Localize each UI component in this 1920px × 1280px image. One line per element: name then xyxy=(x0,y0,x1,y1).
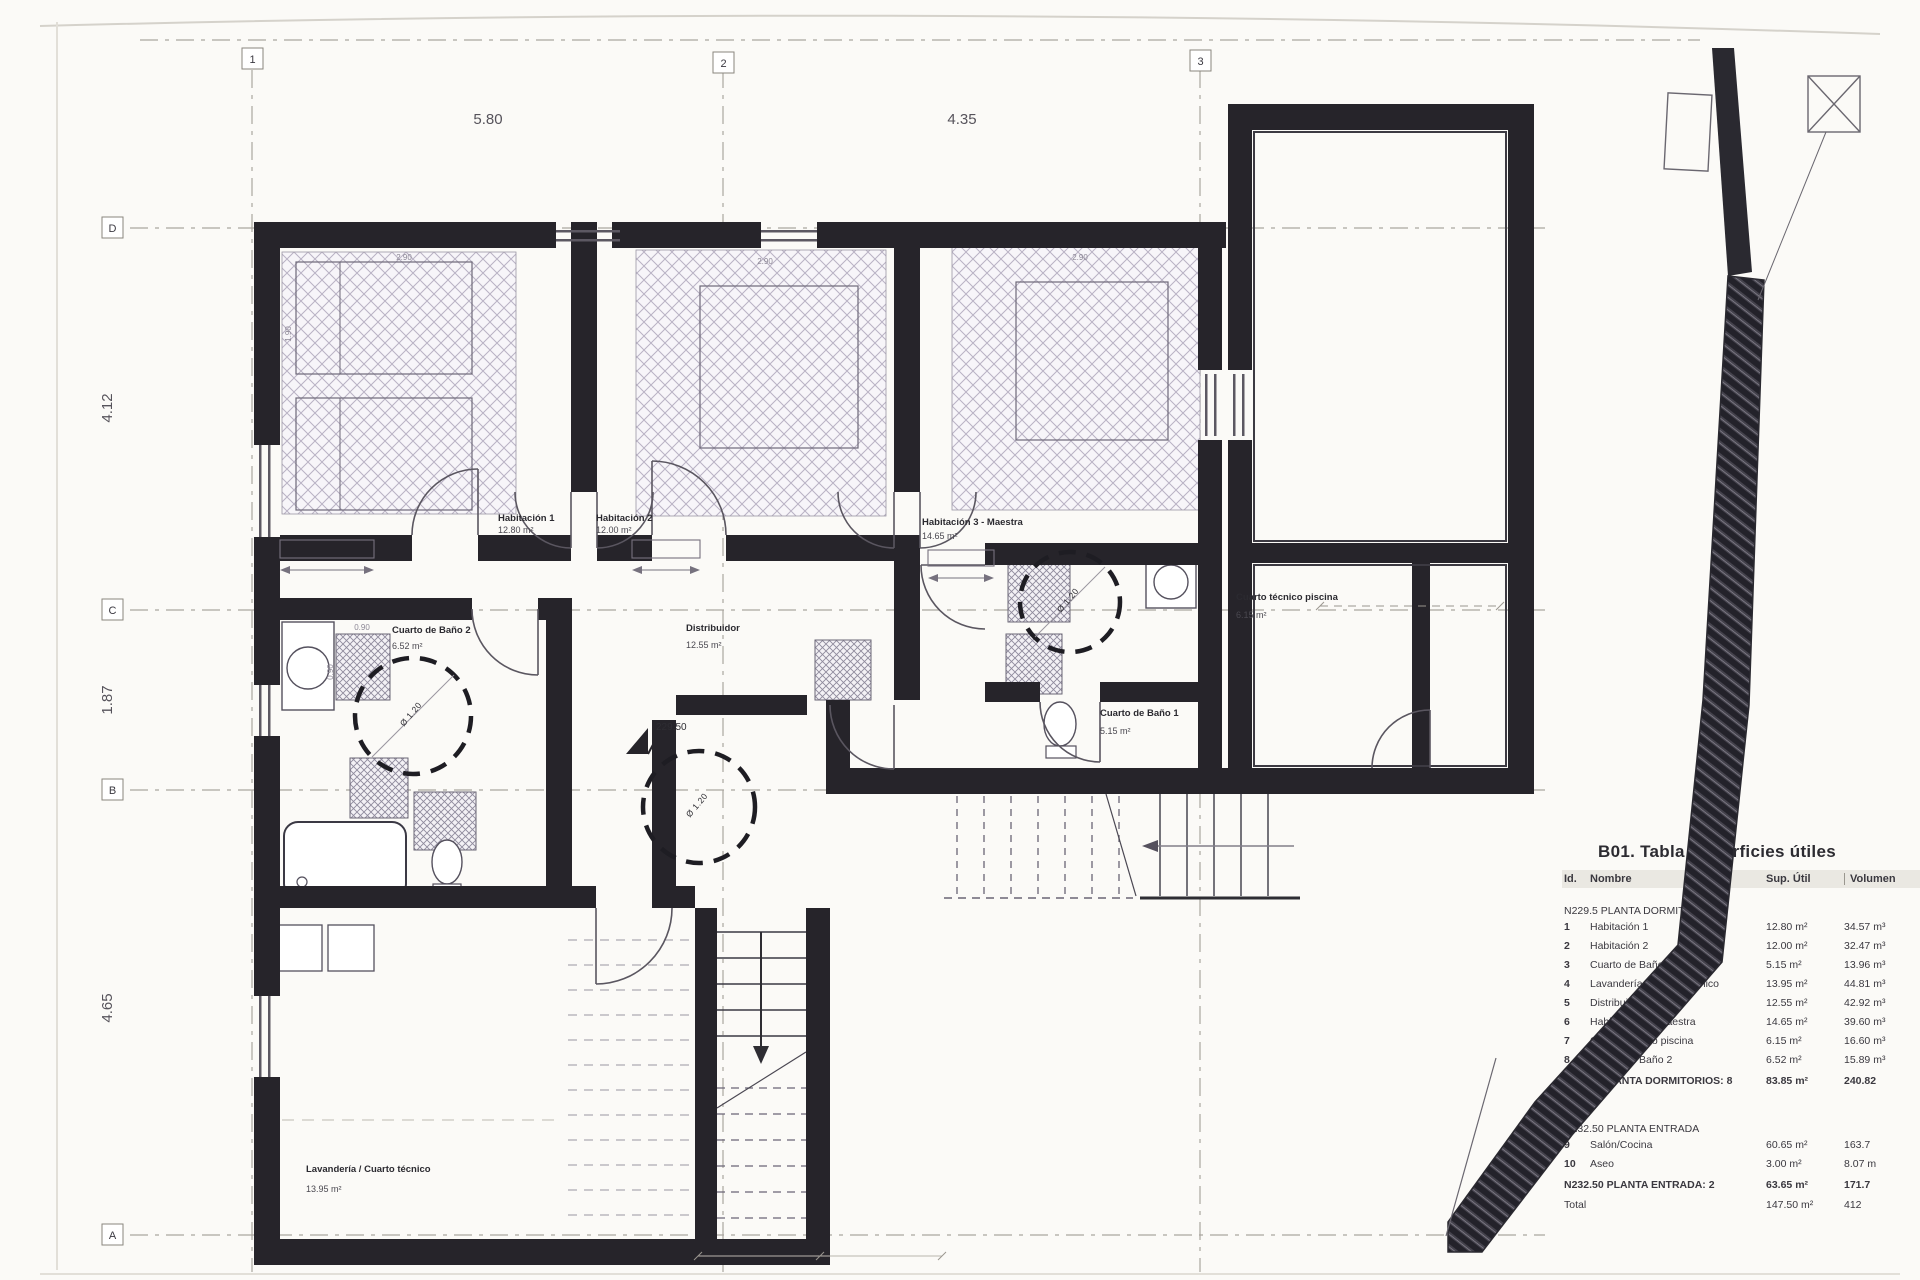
total-row: Total147.50 m²412 xyxy=(1562,1196,1920,1214)
table-row: 10Aseo3.00 m²8.07 m xyxy=(1562,1155,1920,1174)
fixture-dim: 0.90 xyxy=(354,623,370,632)
room-label-bano-1: Cuarto de Baño 1 xyxy=(1100,708,1179,719)
col-volumen: Volumen xyxy=(1844,873,1914,885)
grid-row-d: D xyxy=(109,223,117,235)
toilet-icon xyxy=(1044,702,1076,746)
bed-dim: 2.90 xyxy=(396,253,412,262)
dim-top-2: 4.35 xyxy=(947,111,976,128)
room-label-habitacion-2: Habitación 2 xyxy=(596,513,653,524)
bed-dim: 1.90 xyxy=(284,326,293,342)
dim-top-1: 5.80 xyxy=(473,111,502,128)
table-header: Id. Nombre Sup. Útil Volumen xyxy=(1562,870,1920,888)
turn-circle-label: Ø 1.20 xyxy=(684,791,710,819)
dim-left-1: 4.12 xyxy=(99,393,116,422)
table-row: 9Salón/Cocina60.65 m²163.7 xyxy=(1562,1136,1920,1155)
room-area-bano-1: 5.15 m² xyxy=(1100,726,1131,736)
room-area-lavanderia: 13.95 m² xyxy=(306,1184,342,1194)
room-label-tecnico-piscina: Cuarto técnico piscina xyxy=(1236,592,1339,603)
grid-row-a: A xyxy=(109,1230,117,1242)
grid-row-c: C xyxy=(109,605,117,617)
table-row: 2Habitación 212.00 m²32.47 m³ xyxy=(1562,937,1920,956)
col-nombre: Nombre xyxy=(1590,873,1766,885)
room-label-habitacion-3: Habitación 3 - Maestra xyxy=(922,517,1024,528)
annex-inner-walls xyxy=(1254,132,1506,766)
room-area-habitacion-3: 14.65 m² xyxy=(922,531,958,541)
room-area-tecnico-piscina: 6.15 m² xyxy=(1236,610,1267,620)
room-area-habitacion-2: 12.00 m² xyxy=(596,525,632,535)
room-label-habitacion-1: Habitación 1 xyxy=(498,513,555,524)
dim-left-3: 4.65 xyxy=(99,993,116,1022)
turn-circle-label: Ø 1.20 xyxy=(398,700,424,728)
room-label-distribuidor: Distribuidor xyxy=(686,623,740,634)
toilet-icon xyxy=(432,840,462,884)
level-value: 229.50 xyxy=(656,722,687,733)
dim-left-2: 1.87 xyxy=(99,685,116,714)
room-area-bano-2: 6.52 m² xyxy=(392,641,423,651)
sink-icon xyxy=(1154,565,1188,599)
grid-row-b: B xyxy=(109,785,116,797)
grid-col-2: 2 xyxy=(720,58,726,70)
table-row: 4Lavandería / Cuarto técnico13.95 m²44.8… xyxy=(1562,975,1920,994)
appliance-icon xyxy=(328,925,374,971)
subtotal-entrada: N232.50 PLANTA ENTRADA: 263.65 m²171.7 xyxy=(1562,1178,1920,1192)
table-title: B01. Tabla Superficies útiles xyxy=(1562,842,1920,862)
section-entrada-label: N232.50 PLANTA ENTRADA xyxy=(1562,1122,1920,1136)
room-area-habitacion-1: 12.80 m² xyxy=(498,525,534,535)
bed-dim: 2.90 xyxy=(757,257,773,266)
subtotal-dormitorios: N229.5 PLANTA DORMITORIOS: 883.85 m²240.… xyxy=(1562,1074,1920,1088)
table-row: 6Habitación 3 - Maestra14.65 m²39.60 m³ xyxy=(1562,1013,1920,1032)
table-row: 8Cuarto de Baño 26.52 m²15.89 m³ xyxy=(1562,1051,1920,1070)
table-row: 7Cuarto técnico piscina6.15 m²16.60 m³ xyxy=(1562,1032,1920,1051)
arrowheads xyxy=(280,566,994,582)
grid-col-3: 3 xyxy=(1197,56,1203,68)
col-sup: Sup. Útil xyxy=(1766,873,1844,885)
col-id: Id. xyxy=(1564,873,1590,885)
section-dormitorios-label: N229.5 PLANTA DORMITORIOS: xyxy=(1562,904,1920,918)
table-row: 5Distribuidor12.55 m²42.92 m³ xyxy=(1562,994,1920,1013)
grid-col-1: 1 xyxy=(249,54,255,66)
stair-direction-arrow xyxy=(753,1046,769,1064)
room-label-bano-2: Cuarto de Baño 2 xyxy=(392,625,471,636)
sink-icon xyxy=(287,647,329,689)
surface-table: B01. Tabla Superficies útiles Id. Nombre… xyxy=(1562,842,1920,1214)
table-row: 1Habitación 112.80 m²34.57 m³ xyxy=(1562,918,1920,937)
room-area-distribuidor: 12.55 m² xyxy=(686,640,722,650)
stair-direction-arrow xyxy=(1142,840,1158,852)
table-row: 3Cuarto de Baño 15.15 m²13.96 m³ xyxy=(1562,956,1920,975)
appliance-icon xyxy=(276,925,322,971)
scanned-floor-plan-sheet: { "grid": { "cols": ["1", "2", "3"], "ro… xyxy=(0,0,1920,1280)
bed-dim: 2.90 xyxy=(1072,253,1088,262)
fixture-dim: 0.90 xyxy=(326,664,335,680)
bedroom-furniture: 2.90 1.90 2.90 2.90 xyxy=(282,246,1200,516)
room-label-lavanderia: Lavandería / Cuarto técnico xyxy=(306,1164,431,1175)
